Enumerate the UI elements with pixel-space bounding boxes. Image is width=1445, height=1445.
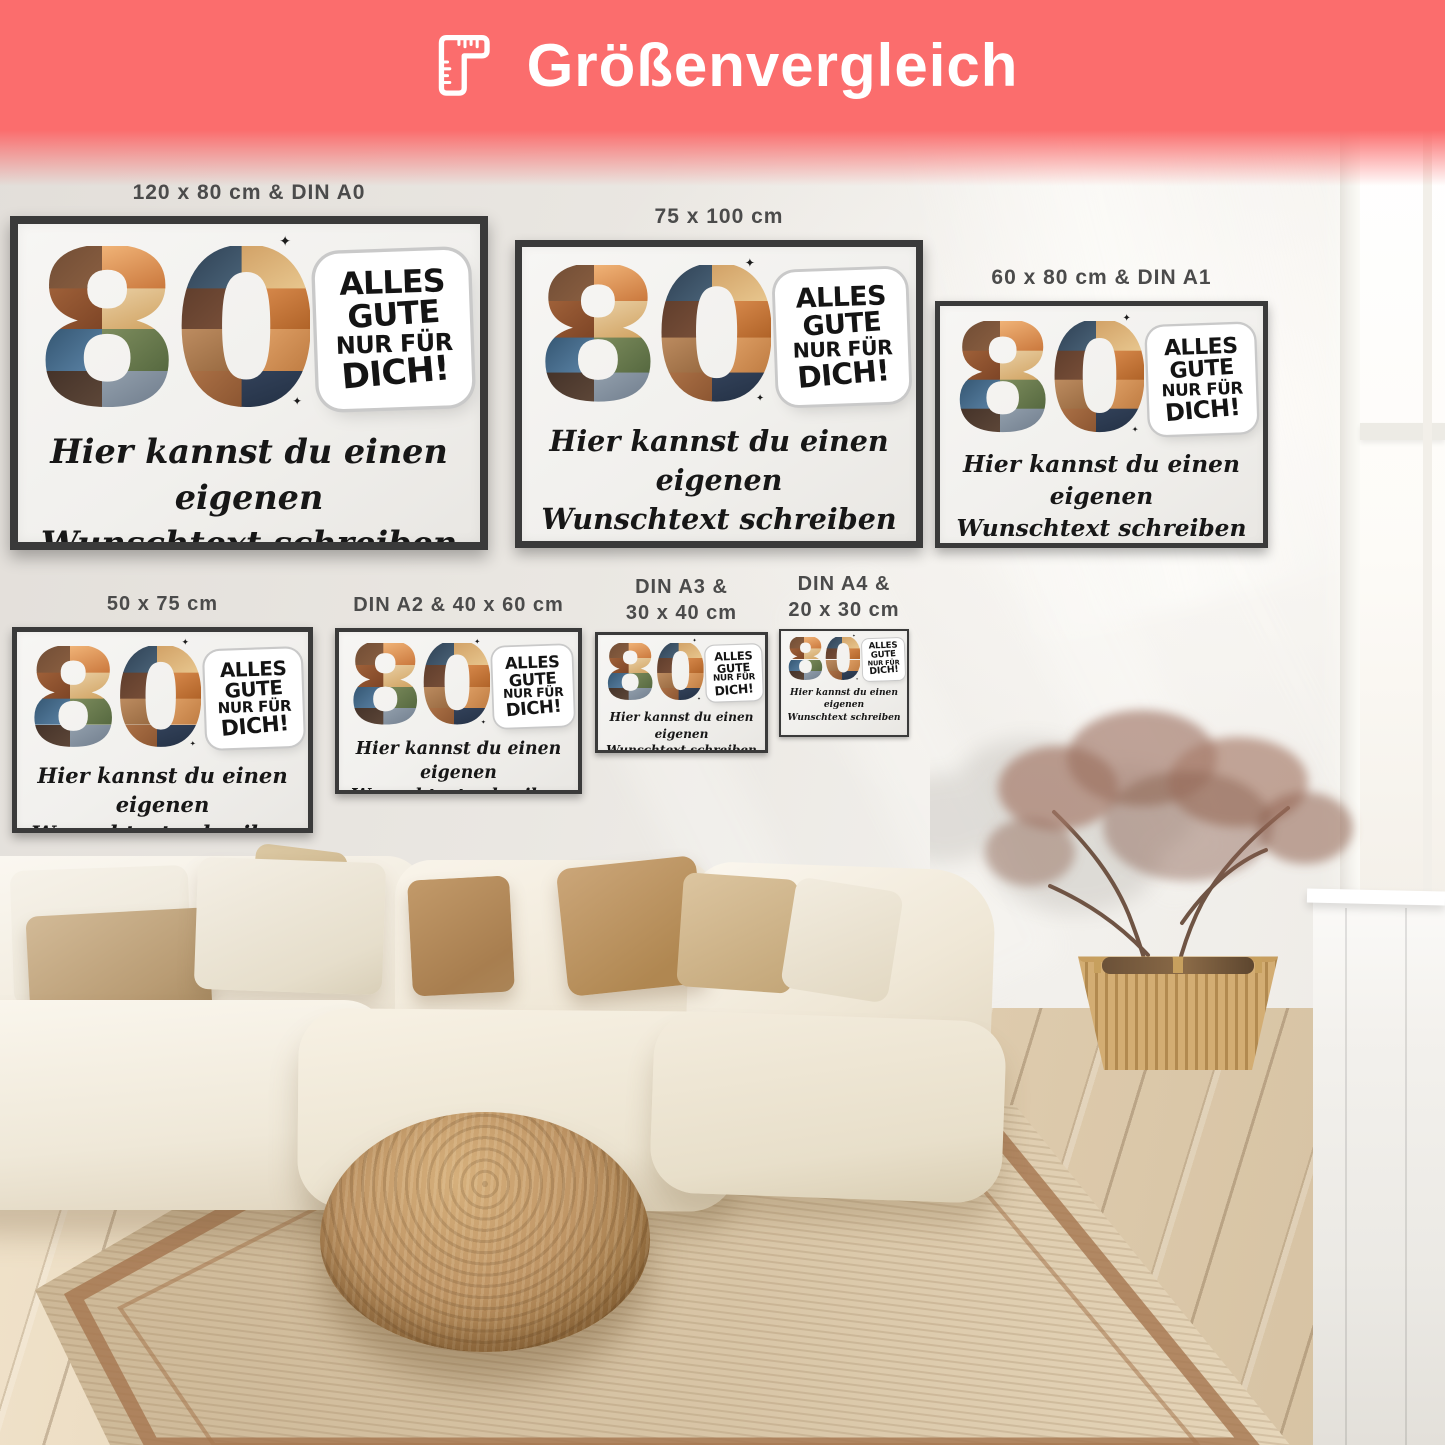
wish-text-line: Wunschtext schreiben — [522, 500, 916, 539]
sideboard-seam — [1405, 908, 1407, 1445]
poster-art: 80 ✦ ✦ ✦ ALLES GUTE NUR FÜR DICH! — [781, 637, 907, 683]
poster-paper: 80 ✦ ✦ ✦ ALLES GUTE NUR FÜR DICH! Hier k… — [595, 632, 768, 753]
pillow-white-large — [194, 857, 386, 995]
poster-75x100: 75 x 100 cm 80 ✦ ✦ ✦ ALLES GUTE NUR FÜR … — [515, 240, 923, 548]
custom-wish-text: Hier kannst du einen eigenen Wunschtext … — [18, 429, 480, 550]
greeting-badge: ALLES GUTE NUR FÜR DICH! — [1151, 327, 1254, 431]
window-jamb — [1340, 128, 1360, 903]
sparkle-icon: ✦ — [856, 678, 859, 681]
poster-din-a4-20x30: DIN A4 & 20 x 30 cm 80 ✦ ✦ ✦ ALLES GUTE … — [779, 629, 909, 737]
poster-size-label: DIN A2 & 40 x 60 cm — [353, 592, 564, 618]
poster-size-label: 120 x 80 cm & DIN A0 — [133, 179, 366, 206]
sparkle-icon: ✦ — [484, 303, 488, 314]
wish-text-line: Wunschtext schreiben — [598, 742, 765, 753]
sparkle-icon: ✦ — [745, 257, 755, 269]
rattan-pouf — [320, 1112, 650, 1352]
photo-collage-number: 80 — [347, 643, 491, 730]
sparkle-icon: ✦ — [1265, 361, 1268, 368]
sparkle-icon: ✦ — [190, 740, 196, 747]
greeting-sticker: ✦ ✦ ✦ ALLES GUTE NUR FÜR DICH! — [864, 640, 903, 679]
sofa-seat-right — [649, 1010, 1007, 1204]
greeting-badge: ALLES GUTE NUR FÜR DICH! — [707, 646, 761, 700]
greeting-sticker: ✦ ✦ ✦ ALLES GUTE NUR FÜR DICH! — [781, 275, 903, 399]
size-label-line: 60 x 80 cm & DIN A1 — [991, 264, 1211, 291]
poster-50x75: 50 x 75 cm 80 ✦ ✦ ✦ ALLES GUTE NUR FÜR D… — [12, 627, 313, 833]
badge-line: GUTE — [346, 298, 440, 333]
wish-text-line: Hier kannst du einen eigenen — [781, 687, 907, 712]
photo-collage-number: 80 — [534, 265, 771, 408]
size-label-line: 120 x 80 cm & DIN A0 — [133, 179, 366, 206]
poster-art: 80 ✦ ✦ ✦ ALLES GUTE NUR FÜR DICH! — [339, 643, 578, 730]
badge-line: GUTE — [1169, 358, 1234, 383]
wish-text-line: Hier kannst du einen eigenen — [598, 709, 765, 742]
wish-text-line: Wunschtext schreiben — [18, 521, 480, 550]
wish-text-line: Wunschtext schreiben — [940, 513, 1263, 545]
sparkle-icon: ✦ — [756, 394, 764, 404]
custom-wish-text: Hier kannst du einen eigenen Wunschtext … — [339, 738, 578, 794]
window-mullion — [1360, 423, 1445, 440]
sparkle-icon: ✦ — [1123, 314, 1131, 324]
wish-text-line: Hier kannst du einen eigenen — [522, 422, 916, 501]
wish-text-line: Hier kannst du einen eigenen — [940, 449, 1263, 513]
sparkle-icon: ✦ — [481, 721, 486, 727]
wish-text-line: Wunschtext schreiben — [781, 712, 907, 725]
sparkle-icon: ✦ — [1132, 426, 1139, 434]
sparkle-icon: ✦ — [580, 673, 582, 678]
sideboard — [1313, 898, 1445, 1445]
poster-size-label: 60 x 80 cm & DIN A1 — [991, 264, 1211, 291]
custom-wish-text: Hier kannst du einen eigenen Wunschtext … — [598, 709, 765, 753]
poster-size-label: DIN A3 & 30 x 40 cm — [626, 574, 737, 626]
size-label-line: DIN A2 & 40 x 60 cm — [353, 592, 564, 618]
badge-line: GUTE — [802, 310, 882, 340]
poster-paper: 80 ✦ ✦ ✦ ALLES GUTE NUR FÜR DICH! Hier k… — [12, 627, 313, 833]
poster-60x80-din-a1: 60 x 80 cm & DIN A1 80 ✦ ✦ ✦ ALLES GUTE … — [935, 301, 1268, 548]
poster-size-label: 75 x 100 cm — [655, 203, 784, 230]
custom-wish-text: Hier kannst du einen eigenen Wunschtext … — [781, 687, 907, 725]
badge-line: DICH! — [506, 699, 563, 720]
badge-line: GUTE — [870, 651, 896, 661]
pillow-cream — [780, 876, 904, 1004]
poster-din-a2-40x60: DIN A2 & 40 x 60 cm 80 ✦ ✦ ✦ ALLES GUTE … — [335, 628, 582, 794]
size-label-line: DIN A4 & — [788, 571, 899, 597]
badge-line: GUTE — [224, 679, 283, 701]
custom-wish-text: Hier kannst du einen eigenen Wunschtext … — [522, 422, 916, 540]
greeting-sticker: ✦ ✦ ✦ ALLES GUTE NUR FÜR DICH! — [496, 649, 570, 724]
wish-text-line: Wunschtext schreiben — [17, 819, 308, 833]
badge-line: DICH! — [340, 353, 450, 394]
sparkle-icon: ✦ — [852, 634, 855, 638]
poster-art: 80 ✦ ✦ ✦ ALLES GUTE NUR FÜR DICH! — [522, 265, 916, 408]
size-label-line: 20 x 30 cm — [788, 597, 899, 623]
storage-basket — [1078, 948, 1278, 1070]
wish-text-line: Wunschtext schreiben — [339, 785, 578, 794]
window-pane — [1360, 128, 1445, 903]
poster-art: 80 ✦ ✦ ✦ ALLES GUTE NUR FÜR DICH! — [940, 321, 1263, 438]
sparkle-icon: ✦ — [692, 639, 696, 644]
poster-size-label: DIN A4 & 20 x 30 cm — [788, 571, 899, 623]
sparkle-icon: ✦ — [311, 682, 313, 689]
sparkle-icon: ✦ — [908, 653, 909, 656]
sparkle-icon: ✦ — [697, 697, 700, 701]
photo-collage-number: 80 — [32, 246, 310, 414]
photo-collage-number: 80 — [951, 321, 1145, 438]
size-label-line: 30 x 40 cm — [626, 600, 737, 626]
sideboard-seam — [1345, 908, 1347, 1445]
greeting-sticker: ✦ ✦ ✦ ALLES GUTE NUR FÜR DICH! — [209, 653, 299, 744]
greeting-badge: ALLES GUTE NUR FÜR DICH! — [779, 273, 906, 401]
sparkle-icon: ✦ — [920, 315, 923, 324]
badge-line: GUTE — [717, 662, 751, 675]
sparkle-icon: ✦ — [767, 664, 768, 668]
greeting-badge: ALLES GUTE NUR FÜR DICH! — [320, 254, 468, 404]
ruler-icon — [427, 27, 503, 103]
sparkle-icon: ✦ — [279, 235, 291, 249]
photo-collage-number: 80 — [603, 643, 704, 704]
poster-paper: 80 ✦ ✦ ✦ ALLES GUTE NUR FÜR DICH! Hier k… — [10, 216, 488, 550]
wish-text-line: Hier kannst du einen eigenen — [17, 761, 308, 819]
badge-line: DICH! — [715, 682, 755, 697]
sparkle-icon: ✦ — [182, 639, 190, 648]
badge-line: GUTE — [509, 670, 557, 688]
poster-art: 80 ✦ ✦ ✦ ALLES GUTE NUR FÜR DICH! — [598, 643, 765, 704]
banner-title: Größenvergleich — [527, 31, 1019, 100]
size-comparison-scene: 120 x 80 cm & DIN A0 80 ✦ ✦ ✦ ALLES GUTE… — [0, 0, 1445, 1445]
sparkle-icon: ✦ — [292, 396, 302, 407]
pillow-light-woven — [676, 872, 799, 994]
custom-wish-text: Hier kannst du einen eigenen Wunschtext … — [940, 449, 1263, 545]
pillow-brown-woven — [407, 875, 515, 996]
poster-paper: 80 ✦ ✦ ✦ ALLES GUTE NUR FÜR DICH! Hier k… — [935, 301, 1268, 548]
badge-line: DICH! — [1165, 396, 1242, 424]
greeting-badge: ALLES GUTE NUR FÜR DICH! — [863, 639, 903, 680]
wish-text-line: Hier kannst du einen eigenen — [339, 738, 578, 786]
poster-art: 80 ✦ ✦ ✦ ALLES GUTE NUR FÜR DICH! — [18, 246, 480, 414]
custom-wish-text: Hier kannst du einen eigenen Wunschtext … — [17, 761, 308, 833]
greeting-sticker: ✦ ✦ ✦ ALLES GUTE NUR FÜR DICH! — [1152, 329, 1252, 430]
badge-line: DICH! — [220, 713, 289, 739]
greeting-sticker: ✦ ✦ ✦ ALLES GUTE NUR FÜR DICH! — [322, 257, 465, 402]
poster-paper: 80 ✦ ✦ ✦ ALLES GUTE NUR FÜR DICH! Hier k… — [335, 628, 582, 794]
poster-din-a3-30x40: DIN A3 & 30 x 40 cm 80 ✦ ✦ ✦ ALLES GUTE … — [595, 632, 768, 753]
window-frame-post — [1423, 128, 1432, 903]
window — [1340, 128, 1445, 903]
poster-size-label: 50 x 75 cm — [107, 591, 218, 617]
sparkle-icon: ✦ — [474, 638, 480, 645]
photo-collage-number: 80 — [26, 646, 201, 752]
greeting-badge: ALLES GUTE NUR FÜR DICH! — [495, 648, 572, 725]
poster-art: 80 ✦ ✦ ✦ ALLES GUTE NUR FÜR DICH! — [17, 646, 308, 752]
size-label-line: DIN A3 & — [626, 574, 737, 600]
greeting-sticker: ✦ ✦ ✦ ALLES GUTE NUR FÜR DICH! — [708, 647, 760, 699]
badge-line: DICH! — [797, 357, 891, 392]
size-label-line: 75 x 100 cm — [655, 203, 784, 230]
wish-text-line: Hier kannst du einen eigenen — [18, 429, 480, 521]
poster-120x80-din-a0: 120 x 80 cm & DIN A0 80 ✦ ✦ ✦ ALLES GUTE… — [10, 216, 488, 550]
photo-collage-number: 80 — [785, 637, 861, 683]
poster-paper: 80 ✦ ✦ ✦ ALLES GUTE NUR FÜR DICH! Hier k… — [515, 240, 923, 548]
badge-line: DICH! — [869, 666, 899, 677]
poster-paper: 80 ✦ ✦ ✦ ALLES GUTE NUR FÜR DICH! Hier k… — [779, 629, 909, 737]
size-label-line: 50 x 75 cm — [107, 591, 218, 617]
size-comparison-banner: Größenvergleich — [0, 0, 1445, 130]
greeting-badge: ALLES GUTE NUR FÜR DICH! — [207, 651, 300, 745]
